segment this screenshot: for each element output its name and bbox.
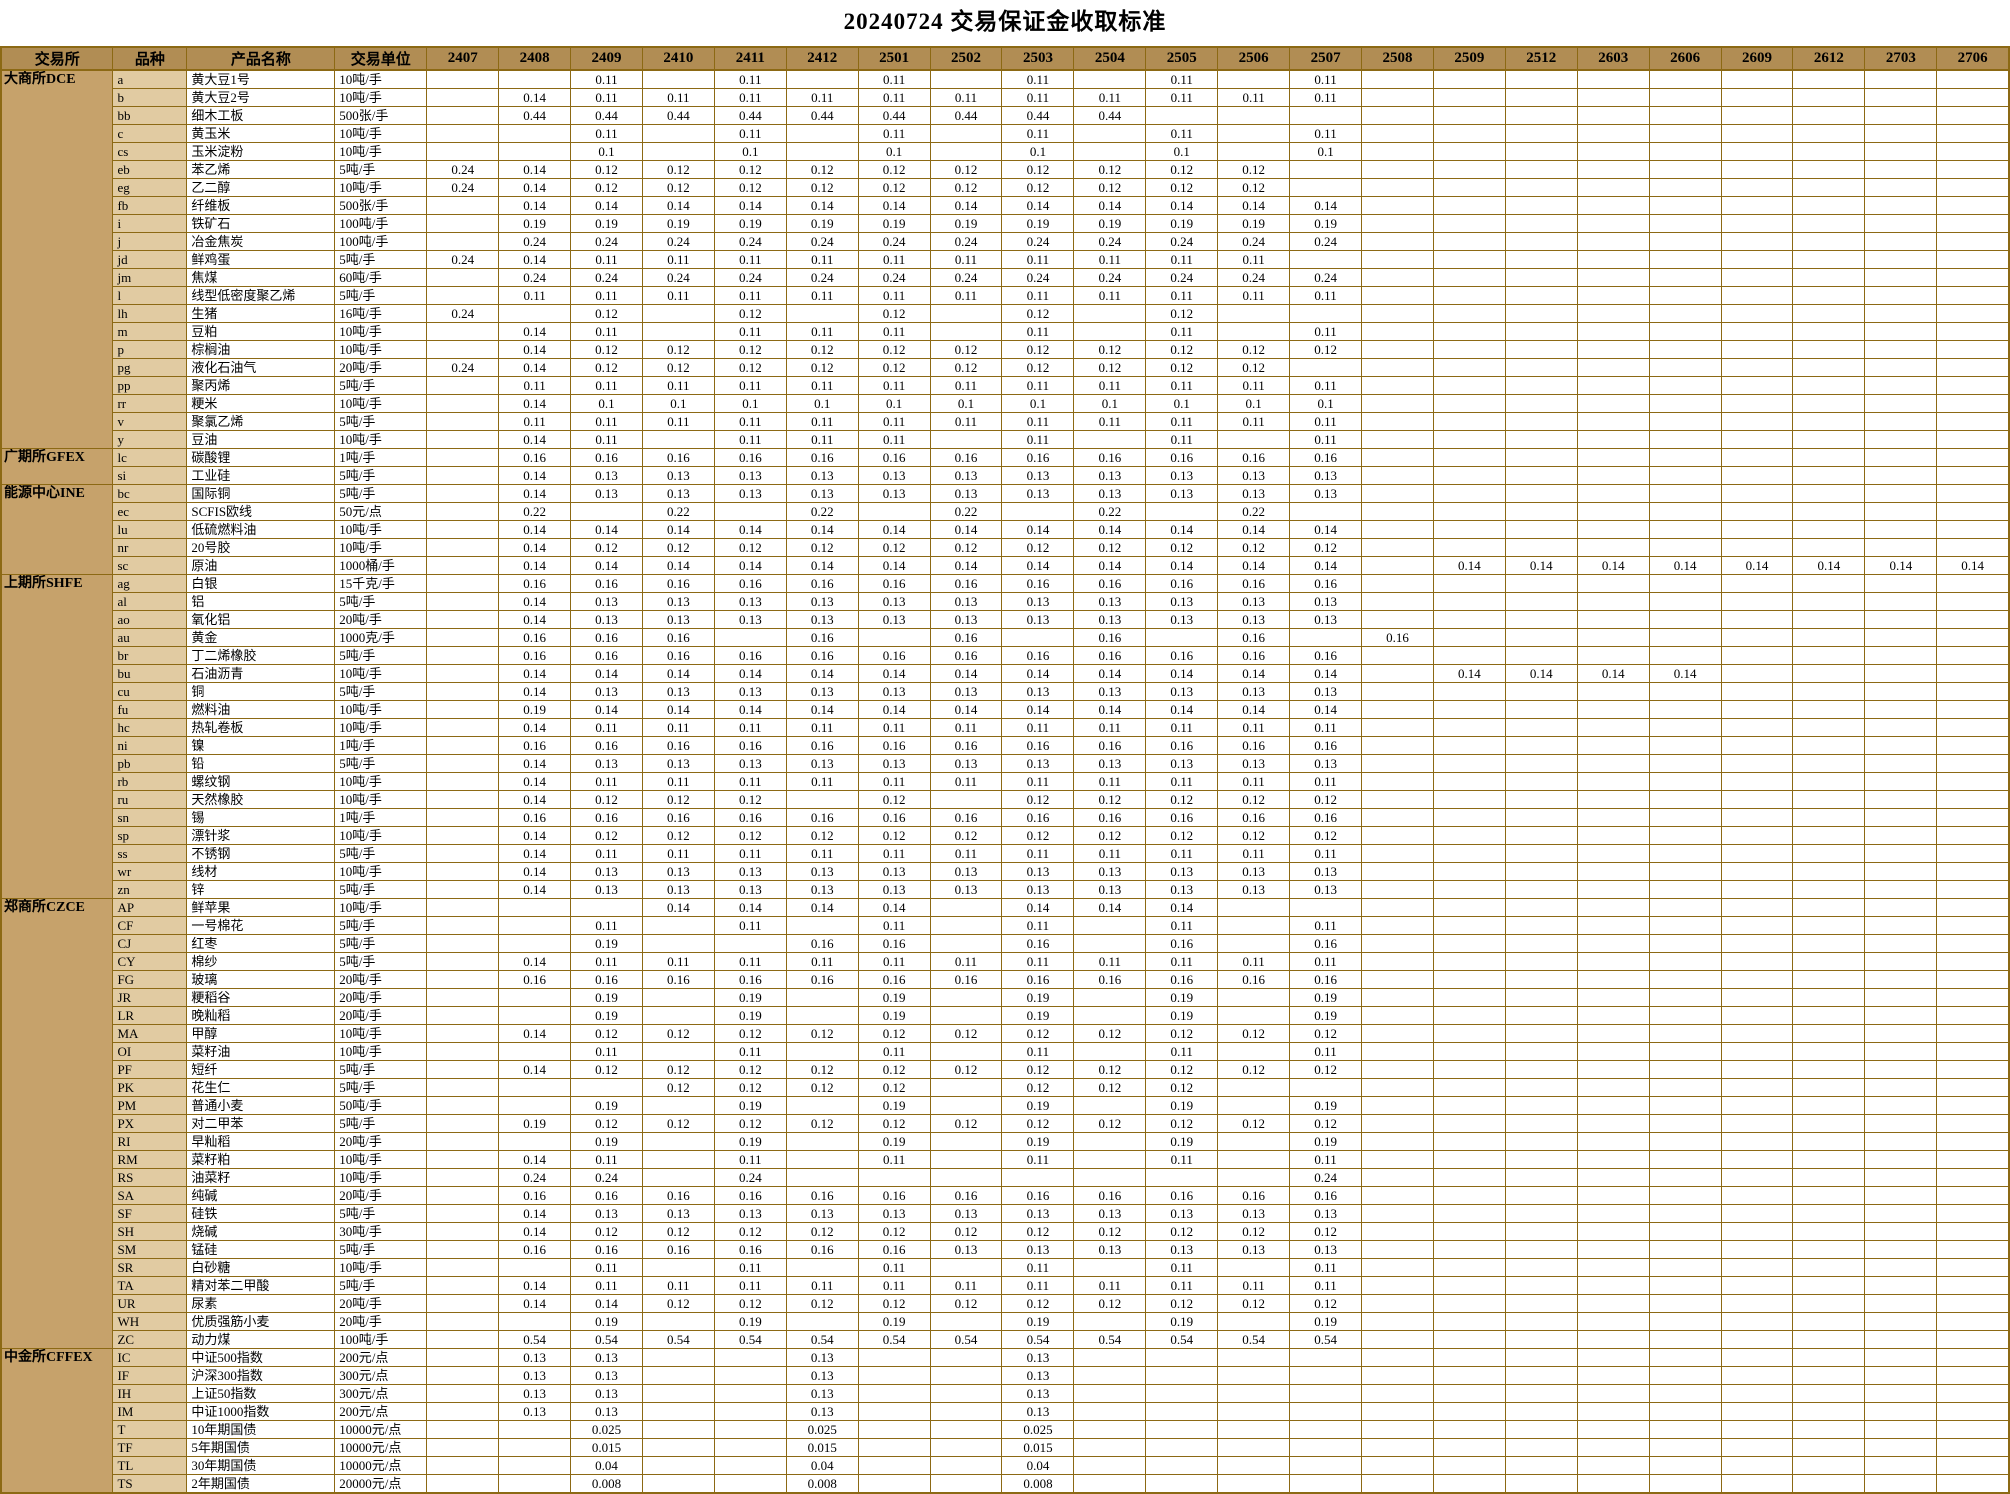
- margin-cell-lu-2504: 0.14: [1074, 521, 1146, 539]
- margin-cell-ZC-2606: [1649, 1331, 1721, 1349]
- margin-cell-sc-2603: 0.14: [1577, 557, 1649, 575]
- margin-cell-cs-2507: 0.1: [1290, 143, 1362, 161]
- margin-cell-pg-2612: [1793, 359, 1865, 377]
- margin-cell-cu-2609: [1721, 683, 1793, 701]
- margin-cell-y-2411: 0.11: [714, 431, 786, 449]
- margin-cell-fb-2612: [1793, 197, 1865, 215]
- product-name: 锰硅: [187, 1241, 335, 1259]
- margin-cell-al-2609: [1721, 593, 1793, 611]
- margin-cell-si-2408: 0.14: [499, 467, 571, 485]
- margin-cell-WH-2409: 0.19: [571, 1313, 643, 1331]
- margin-cell-PX-2612: [1793, 1115, 1865, 1133]
- margin-cell-MA-2506: 0.12: [1218, 1025, 1290, 1043]
- margin-cell-y-2407: [427, 431, 499, 449]
- margin-cell-ao-2509: [1433, 611, 1505, 629]
- margin-cell-PK-2706: [1937, 1079, 2009, 1097]
- margin-cell-CY-2505: 0.11: [1146, 953, 1218, 971]
- margin-cell-br-2411: 0.16: [714, 647, 786, 665]
- product-row-i: i铁矿石100吨/手0.190.190.190.190.190.190.190.…: [1, 215, 2009, 233]
- margin-cell-RS-2408: 0.24: [499, 1169, 571, 1187]
- product-row-al: al铝5吨/手0.140.130.130.130.130.130.130.130…: [1, 593, 2009, 611]
- margin-cell-IC-2502: [930, 1349, 1002, 1367]
- margin-cell-pp-2703: [1865, 377, 1937, 395]
- margin-cell-PF-2508: [1362, 1061, 1434, 1079]
- margin-cell-c-2612: [1793, 125, 1865, 143]
- product-row-zn: zn锌5吨/手0.140.130.130.130.130.130.130.130…: [1, 881, 2009, 899]
- margin-cell-RM-2506: [1218, 1151, 1290, 1169]
- margin-cell-b-2506: 0.11: [1218, 89, 1290, 107]
- margin-cell-RS-2503: [1002, 1169, 1074, 1187]
- margin-cell-m-2703: [1865, 323, 1937, 341]
- margin-cell-b-2501: 0.11: [858, 89, 930, 107]
- margin-cell-br-2503: 0.16: [1002, 647, 1074, 665]
- margin-cell-lh-2409: 0.12: [571, 305, 643, 323]
- margin-cell-v-2512: [1505, 413, 1577, 431]
- product-row-br: br丁二烯橡胶5吨/手0.160.160.160.160.160.160.160…: [1, 647, 2009, 665]
- margin-cell-AP-2503: 0.14: [1002, 899, 1074, 917]
- margin-cell-hc-2703: [1865, 719, 1937, 737]
- margin-cell-CJ-2603: [1577, 935, 1649, 953]
- margin-cell-T-2706: [1937, 1421, 2009, 1439]
- margin-cell-ru-2603: [1577, 791, 1649, 809]
- margin-cell-cu-2412: 0.13: [786, 683, 858, 701]
- margin-cell-ag-2606: [1649, 575, 1721, 593]
- margin-cell-LR-2411: 0.19: [714, 1007, 786, 1025]
- table-body: 大商所DCEa黄大豆1号10吨/手0.110.110.110.110.110.1…: [1, 70, 2009, 1493]
- margin-cell-PF-2703: [1865, 1061, 1937, 1079]
- margin-cell-c-2504: [1074, 125, 1146, 143]
- margin-cell-WH-2505: 0.19: [1146, 1313, 1218, 1331]
- margin-cell-ss-2603: [1577, 845, 1649, 863]
- margin-cell-PM-2504: [1074, 1097, 1146, 1115]
- margin-cell-WH-2504: [1074, 1313, 1146, 1331]
- margin-cell-cs-2512: [1505, 143, 1577, 161]
- margin-cell-JR-2509: [1433, 989, 1505, 1007]
- margin-cell-ru-2512: [1505, 791, 1577, 809]
- product-name: 低硫燃料油: [187, 521, 335, 539]
- margin-cell-WH-2706: [1937, 1313, 2009, 1331]
- margin-cell-si-2411: 0.13: [714, 467, 786, 485]
- margin-cell-SR-2706: [1937, 1259, 2009, 1277]
- margin-cell-bu-2407: [427, 665, 499, 683]
- trading-unit: 5吨/手: [335, 1061, 427, 1079]
- margin-cell-IM-2411: [714, 1403, 786, 1421]
- margin-cell-c-2407: [427, 125, 499, 143]
- margin-cell-IM-2407: [427, 1403, 499, 1421]
- margin-cell-sc-2609: 0.14: [1721, 557, 1793, 575]
- variety-code: ss: [113, 845, 187, 863]
- margin-cell-nr-2407: [427, 539, 499, 557]
- margin-cell-au-2703: [1865, 629, 1937, 647]
- product-name: 普通小麦: [187, 1097, 335, 1115]
- margin-cell-CJ-2606: [1649, 935, 1721, 953]
- margin-cell-fu-2409: 0.14: [571, 701, 643, 719]
- margin-cell-IF-2407: [427, 1367, 499, 1385]
- margin-cell-LR-2502: [930, 1007, 1002, 1025]
- margin-cell-PK-2502: [930, 1079, 1002, 1097]
- product-row-pb: pb铅5吨/手0.140.130.130.130.130.130.130.130…: [1, 755, 2009, 773]
- margin-cell-fb-2512: [1505, 197, 1577, 215]
- margin-cell-ec-2612: [1793, 503, 1865, 521]
- margin-cell-si-2505: 0.13: [1146, 467, 1218, 485]
- margin-cell-rb-2411: 0.11: [714, 773, 786, 791]
- margin-cell-WH-2606: [1649, 1313, 1721, 1331]
- product-name: 石油沥青: [187, 665, 335, 683]
- trading-unit: 200元/点: [335, 1403, 427, 1421]
- product-row-pp: pp聚丙烯5吨/手0.110.110.110.110.110.110.110.1…: [1, 377, 2009, 395]
- margin-cell-sn-2506: 0.16: [1218, 809, 1290, 827]
- margin-cell-ru-2410: 0.12: [642, 791, 714, 809]
- margin-cell-SF-2706: [1937, 1205, 2009, 1223]
- margin-cell-l-2603: [1577, 287, 1649, 305]
- margin-cell-SH-2507: 0.12: [1290, 1223, 1362, 1241]
- margin-cell-FG-2408: 0.16: [499, 971, 571, 989]
- spreadsheet-page: 20240724 交易保证金收取标准 交易所品种产品名称交易单位24072408…: [0, 0, 2010, 1494]
- margin-cell-m-2606: [1649, 323, 1721, 341]
- margin-cell-eb-2502: 0.12: [930, 161, 1002, 179]
- month-header-2407: 2407: [427, 47, 499, 70]
- margin-cell-sc-2506: 0.14: [1218, 557, 1290, 575]
- margin-cell-jm-2503: 0.24: [1002, 269, 1074, 287]
- margin-cell-IF-2410: [642, 1367, 714, 1385]
- variety-code: MA: [113, 1025, 187, 1043]
- margin-cell-fb-2603: [1577, 197, 1649, 215]
- month-header-2409: 2409: [571, 47, 643, 70]
- month-header-2507: 2507: [1290, 47, 1362, 70]
- margin-cell-i-2407: [427, 215, 499, 233]
- margin-cell-SA-2606: [1649, 1187, 1721, 1205]
- trading-unit: 10吨/手: [335, 791, 427, 809]
- margin-cell-a-2609: [1721, 70, 1793, 89]
- margin-cell-y-2612: [1793, 431, 1865, 449]
- margin-cell-SF-2505: 0.13: [1146, 1205, 1218, 1223]
- margin-cell-eg-2612: [1793, 179, 1865, 197]
- margin-cell-cs-2508: [1362, 143, 1434, 161]
- margin-cell-b-2411: 0.11: [714, 89, 786, 107]
- margin-cell-UR-2407: [427, 1295, 499, 1313]
- margin-cell-FG-2506: 0.16: [1218, 971, 1290, 989]
- margin-cell-TL-2703: [1865, 1457, 1937, 1475]
- margin-cell-IH-2409: 0.13: [571, 1385, 643, 1403]
- margin-cell-ni-2606: [1649, 737, 1721, 755]
- variety-code: j: [113, 233, 187, 251]
- margin-cell-lh-2603: [1577, 305, 1649, 323]
- margin-cell-c-2503: 0.11: [1002, 125, 1074, 143]
- margin-cell-jd-2412: 0.11: [786, 251, 858, 269]
- margin-cell-wr-2706: [1937, 863, 2009, 881]
- margin-cell-SA-2609: [1721, 1187, 1793, 1205]
- margin-cell-rb-2512: [1505, 773, 1577, 791]
- product-name: 聚氯乙烯: [187, 413, 335, 431]
- margin-cell-AP-2703: [1865, 899, 1937, 917]
- margin-cell-FG-2407: [427, 971, 499, 989]
- margin-cell-cu-2505: 0.13: [1146, 683, 1218, 701]
- margin-cell-ag-2407: [427, 575, 499, 593]
- margin-cell-al-2706: [1937, 593, 2009, 611]
- product-name-column-header: 产品名称: [187, 47, 335, 70]
- margin-cell-UR-2408: 0.14: [499, 1295, 571, 1313]
- margin-cell-ec-2503: [1002, 503, 1074, 521]
- margin-cell-lc-2612: [1793, 449, 1865, 467]
- margin-cell-pg-2603: [1577, 359, 1649, 377]
- margin-cell-p-2509: [1433, 341, 1505, 359]
- margin-cell-rb-2501: 0.11: [858, 773, 930, 791]
- margin-cell-PX-2501: 0.12: [858, 1115, 930, 1133]
- margin-cell-pg-2506: 0.12: [1218, 359, 1290, 377]
- margin-cell-jd-2509: [1433, 251, 1505, 269]
- margin-cell-bc-2502: 0.13: [930, 485, 1002, 503]
- margin-cell-UR-2703: [1865, 1295, 1937, 1313]
- margin-cell-y-2507: 0.11: [1290, 431, 1362, 449]
- margin-cell-WH-2512: [1505, 1313, 1577, 1331]
- product-name: 国际铜: [187, 485, 335, 503]
- variety-code: a: [113, 70, 187, 89]
- variety-code: TL: [113, 1457, 187, 1475]
- trading-unit: 5吨/手: [335, 881, 427, 899]
- month-header-2412: 2412: [786, 47, 858, 70]
- trading-unit: 16吨/手: [335, 305, 427, 323]
- margin-cell-al-2501: 0.13: [858, 593, 930, 611]
- margin-cell-SH-2408: 0.14: [499, 1223, 571, 1241]
- margin-cell-SA-2409: 0.16: [571, 1187, 643, 1205]
- margin-cell-PM-2603: [1577, 1097, 1649, 1115]
- margin-cell-a-2411: 0.11: [714, 70, 786, 89]
- variety-code: IM: [113, 1403, 187, 1421]
- margin-cell-IM-2606: [1649, 1403, 1721, 1421]
- margin-cell-al-2508: [1362, 593, 1434, 611]
- margin-cell-OI-2501: 0.11: [858, 1043, 930, 1061]
- margin-cell-hc-2408: 0.14: [499, 719, 571, 737]
- product-row-SF: SF硅铁5吨/手0.140.130.130.130.130.130.130.13…: [1, 1205, 2009, 1223]
- margin-cell-IC-2506: [1218, 1349, 1290, 1367]
- margin-cell-RI-2412: [786, 1133, 858, 1151]
- margin-cell-IM-2408: 0.13: [499, 1403, 571, 1421]
- margin-cell-cs-2612: [1793, 143, 1865, 161]
- margin-cell-T-2412: 0.025: [786, 1421, 858, 1439]
- margin-cell-PF-2507: 0.12: [1290, 1061, 1362, 1079]
- margin-cell-ss-2512: [1505, 845, 1577, 863]
- margin-cell-RM-2407: [427, 1151, 499, 1169]
- product-row-TF: TF5年期国债10000元/点0.0150.0150.015: [1, 1439, 2009, 1457]
- margin-cell-fb-2504: 0.14: [1074, 197, 1146, 215]
- product-name: 漂针浆: [187, 827, 335, 845]
- margin-cell-RM-2508: [1362, 1151, 1434, 1169]
- margin-cell-pb-2411: 0.13: [714, 755, 786, 773]
- margin-cell-eg-2411: 0.12: [714, 179, 786, 197]
- margin-cell-UR-2501: 0.12: [858, 1295, 930, 1313]
- margin-cell-bu-2703: [1865, 665, 1937, 683]
- margin-cell-jd-2503: 0.11: [1002, 251, 1074, 269]
- product-row-RI: RI早籼稻20吨/手0.190.190.190.190.190.19: [1, 1133, 2009, 1151]
- exchange-label: 广期所GFEX: [1, 449, 113, 485]
- margin-cell-TF-2505: [1146, 1439, 1218, 1457]
- margin-cell-y-2509: [1433, 431, 1505, 449]
- margin-cell-sn-2606: [1649, 809, 1721, 827]
- margin-cell-PK-2411: 0.12: [714, 1079, 786, 1097]
- variety-code: CY: [113, 953, 187, 971]
- margin-cell-cu-2603: [1577, 683, 1649, 701]
- margin-cell-TS-2509: [1433, 1475, 1505, 1494]
- margin-cell-IH-2512: [1505, 1385, 1577, 1403]
- variety-code: au: [113, 629, 187, 647]
- trading-unit: 5吨/手: [335, 1115, 427, 1133]
- margin-cell-ag-2409: 0.16: [571, 575, 643, 593]
- margin-cell-wr-2703: [1865, 863, 1937, 881]
- margin-cell-PK-2703: [1865, 1079, 1937, 1097]
- margin-cell-lc-2506: 0.16: [1218, 449, 1290, 467]
- margin-cell-l-2412: 0.11: [786, 287, 858, 305]
- margin-cell-UR-2502: 0.12: [930, 1295, 1002, 1313]
- margin-cell-pb-2609: [1721, 755, 1793, 773]
- product-row-CY: CY棉纱5吨/手0.140.110.110.110.110.110.110.11…: [1, 953, 2009, 971]
- variety-code: jm: [113, 269, 187, 287]
- margin-cell-sp-2411: 0.12: [714, 827, 786, 845]
- margin-cell-PK-2509: [1433, 1079, 1505, 1097]
- margin-cell-jm-2411: 0.24: [714, 269, 786, 287]
- margin-cell-sc-2408: 0.14: [499, 557, 571, 575]
- margin-cell-eg-2412: 0.12: [786, 179, 858, 197]
- margin-cell-fu-2703: [1865, 701, 1937, 719]
- margin-cell-m-2411: 0.11: [714, 323, 786, 341]
- margin-cell-IH-2508: [1362, 1385, 1434, 1403]
- margin-cell-RS-2501: [858, 1169, 930, 1187]
- margin-cell-TA-2409: 0.11: [571, 1277, 643, 1295]
- margin-cell-y-2603: [1577, 431, 1649, 449]
- margin-cell-rb-2612: [1793, 773, 1865, 791]
- margin-cell-pp-2409: 0.11: [571, 377, 643, 395]
- margin-cell-lc-2603: [1577, 449, 1649, 467]
- margin-cell-bb-2411: 0.44: [714, 107, 786, 125]
- margin-cell-IM-2412: 0.13: [786, 1403, 858, 1421]
- margin-cell-rb-2410: 0.11: [642, 773, 714, 791]
- margin-cell-bb-2409: 0.44: [571, 107, 643, 125]
- margin-cell-RM-2501: 0.11: [858, 1151, 930, 1169]
- margin-cell-lu-2411: 0.14: [714, 521, 786, 539]
- margin-cell-PM-2507: 0.19: [1290, 1097, 1362, 1115]
- margin-cell-MA-2503: 0.12: [1002, 1025, 1074, 1043]
- margin-cell-pg-2504: 0.12: [1074, 359, 1146, 377]
- margin-cell-b-2507: 0.11: [1290, 89, 1362, 107]
- margin-cell-UR-2410: 0.12: [642, 1295, 714, 1313]
- product-row-ru: ru天然橡胶10吨/手0.140.120.120.120.120.120.120…: [1, 791, 2009, 809]
- product-row-a: 大商所DCEa黄大豆1号10吨/手0.110.110.110.110.110.1…: [1, 70, 2009, 89]
- margin-cell-m-2706: [1937, 323, 2009, 341]
- margin-cell-nr-2502: 0.12: [930, 539, 1002, 557]
- margin-cell-SH-2501: 0.12: [858, 1223, 930, 1241]
- margin-cell-rr-2411: 0.1: [714, 395, 786, 413]
- margin-cell-eb-2703: [1865, 161, 1937, 179]
- margin-cell-jm-2504: 0.24: [1074, 269, 1146, 287]
- product-name: 中证1000指数: [187, 1403, 335, 1421]
- margin-cell-RI-2603: [1577, 1133, 1649, 1151]
- margin-cell-bb-2408: 0.44: [499, 107, 571, 125]
- month-header-2512: 2512: [1505, 47, 1577, 70]
- margin-cell-y-2412: 0.11: [786, 431, 858, 449]
- margin-cell-CY-2503: 0.11: [1002, 953, 1074, 971]
- product-row-IM: IM中证1000指数200元/点0.130.130.130.13: [1, 1403, 2009, 1421]
- month-header-2411: 2411: [714, 47, 786, 70]
- margin-cell-rb-2506: 0.11: [1218, 773, 1290, 791]
- margin-cell-PK-2512: [1505, 1079, 1577, 1097]
- trading-unit: 10吨/手: [335, 1169, 427, 1187]
- margin-cell-fu-2505: 0.14: [1146, 701, 1218, 719]
- variety-code: ru: [113, 791, 187, 809]
- margin-cell-OI-2502: [930, 1043, 1002, 1061]
- margin-cell-TS-2603: [1577, 1475, 1649, 1494]
- margin-cell-ZC-2409: 0.54: [571, 1331, 643, 1349]
- margin-cell-SF-2412: 0.13: [786, 1205, 858, 1223]
- margin-cell-TL-2507: [1290, 1457, 1362, 1475]
- product-name: 豆粕: [187, 323, 335, 341]
- product-row-IF: IF沪深300指数300元/点0.130.130.130.13: [1, 1367, 2009, 1385]
- margin-cell-TL-2706: [1937, 1457, 2009, 1475]
- product-row-SH: SH烧碱30吨/手0.140.120.120.120.120.120.120.1…: [1, 1223, 2009, 1241]
- margin-cell-m-2509: [1433, 323, 1505, 341]
- margin-cell-WH-2609: [1721, 1313, 1793, 1331]
- margin-cell-ss-2502: 0.11: [930, 845, 1002, 863]
- product-name: 动力煤: [187, 1331, 335, 1349]
- margin-cell-a-2503: 0.11: [1002, 70, 1074, 89]
- margin-cell-JR-2507: 0.19: [1290, 989, 1362, 1007]
- margin-cell-b-2609: [1721, 89, 1793, 107]
- margin-cell-PF-2410: 0.12: [642, 1061, 714, 1079]
- margin-cell-nr-2606: [1649, 539, 1721, 557]
- margin-cell-OI-2411: 0.11: [714, 1043, 786, 1061]
- margin-cell-bc-2411: 0.13: [714, 485, 786, 503]
- margin-cell-fu-2706: [1937, 701, 2009, 719]
- margin-cell-sc-2507: 0.14: [1290, 557, 1362, 575]
- margin-cell-TL-2508: [1362, 1457, 1434, 1475]
- margin-cell-cs-2703: [1865, 143, 1937, 161]
- product-name: 中证500指数: [187, 1349, 335, 1367]
- margin-cell-SH-2703: [1865, 1223, 1937, 1241]
- margin-cell-IM-2501: [858, 1403, 930, 1421]
- margin-cell-ss-2508: [1362, 845, 1434, 863]
- product-row-TL: TL30年期国债10000元/点0.040.040.04: [1, 1457, 2009, 1475]
- margin-cell-zn-2412: 0.13: [786, 881, 858, 899]
- margin-cell-lc-2410: 0.16: [642, 449, 714, 467]
- margin-cell-SM-2612: [1793, 1241, 1865, 1259]
- margin-cell-bu-2509: 0.14: [1433, 665, 1505, 683]
- margin-cell-SA-2501: 0.16: [858, 1187, 930, 1205]
- margin-cell-lh-2501: 0.12: [858, 305, 930, 323]
- margin-cell-RM-2502: [930, 1151, 1002, 1169]
- trading-unit: 5吨/手: [335, 1079, 427, 1097]
- margin-cell-IF-2411: [714, 1367, 786, 1385]
- margin-cell-CJ-2411: [714, 935, 786, 953]
- margin-cell-au-2502: 0.16: [930, 629, 1002, 647]
- product-row-y: y豆油10吨/手0.140.110.110.110.110.110.110.11: [1, 431, 2009, 449]
- margin-cell-jm-2508: [1362, 269, 1434, 287]
- margin-cell-p-2505: 0.12: [1146, 341, 1218, 359]
- margin-cell-ao-2412: 0.13: [786, 611, 858, 629]
- margin-cell-m-2412: 0.11: [786, 323, 858, 341]
- product-row-AP: 郑商所CZCEAP鲜苹果10吨/手0.140.140.140.140.140.1…: [1, 899, 2009, 917]
- margin-cell-c-2501: 0.11: [858, 125, 930, 143]
- margin-cell-eg-2501: 0.12: [858, 179, 930, 197]
- margin-cell-y-2505: 0.11: [1146, 431, 1218, 449]
- margin-cell-lc-2609: [1721, 449, 1793, 467]
- margin-cell-T-2502: [930, 1421, 1002, 1439]
- margin-cell-br-2410: 0.16: [642, 647, 714, 665]
- margin-cell-AP-2612: [1793, 899, 1865, 917]
- margin-cell-SA-2603: [1577, 1187, 1649, 1205]
- margin-cell-RS-2703: [1865, 1169, 1937, 1187]
- margin-cell-SF-2609: [1721, 1205, 1793, 1223]
- margin-cell-v-2609: [1721, 413, 1793, 431]
- margin-cell-rr-2606: [1649, 395, 1721, 413]
- margin-cell-RI-2508: [1362, 1133, 1434, 1151]
